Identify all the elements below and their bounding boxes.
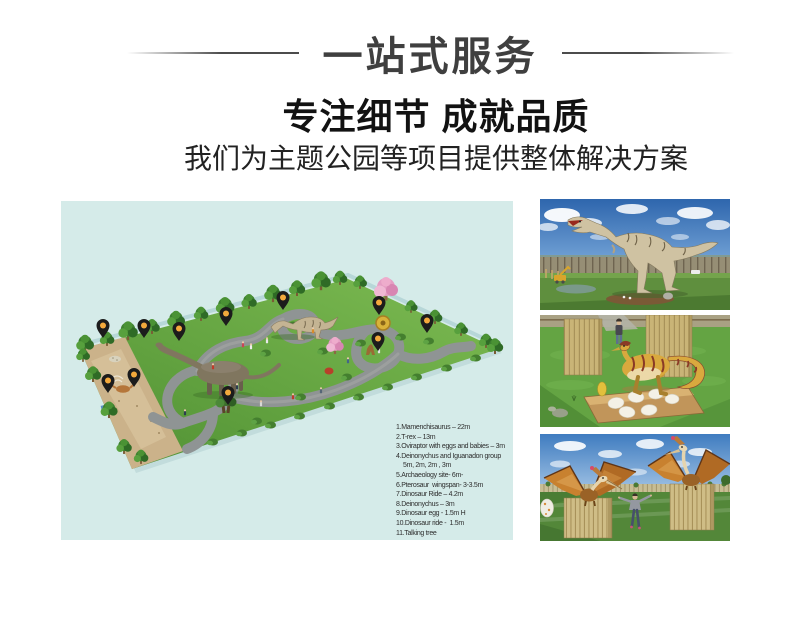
pond: [556, 285, 596, 294]
banner-divider-right: [562, 52, 734, 54]
promo-page: 一站式服务 专注细节 成就品质 我们为主题公园等项目提供整体解决方案: [0, 0, 800, 626]
legend-item: 11.Talking tree: [396, 529, 511, 539]
legend-item: 1.Mamenchisaurus – 22m: [396, 423, 511, 433]
legend-item: 3.Oviraptor with eggs and babies – 3m: [396, 442, 511, 452]
section-subtitle: 我们为主题公园等项目提供整体解决方案: [0, 137, 800, 177]
legend-item: 5.Archaeology site- 6m-: [396, 471, 511, 481]
photo-oviraptor-eggs: [540, 315, 730, 427]
red-bush: [325, 368, 334, 375]
legend-item: 9.Dinosaur egg - 1.5m H: [396, 509, 511, 519]
distant-car: [691, 270, 700, 274]
photo-trex-model: [540, 199, 730, 310]
legend-item: 8.Deinonychus – 3m: [396, 500, 511, 510]
park-map-illustration: 1.Mamenchisaurus – 22m 2.T-rex – 13m 3.O…: [61, 201, 513, 540]
photo-pterosaur-ride: [540, 434, 730, 541]
rock: [663, 293, 673, 300]
hatchling-egg: [598, 382, 607, 396]
legend-item: 2.T-rex – 13m: [396, 433, 511, 443]
banner-title: 一站式服务: [323, 24, 538, 82]
gold-nest: [376, 316, 390, 330]
pedestal-left: [564, 498, 612, 538]
wood-palisade-left: [564, 319, 602, 375]
egg-ornament: [541, 499, 554, 517]
map-legend: 1.Mamenchisaurus – 22m 2.T-rex – 13m 3.O…: [396, 423, 511, 538]
legend-item: 5m, 2m, 2m , 3m: [396, 461, 511, 471]
pedestal-right: [670, 484, 714, 530]
section-heading: 专注细节 成就品质: [0, 88, 800, 140]
legend-item: 7.Dinosaur Ride – 4.2m: [396, 490, 511, 500]
legend-item: 10.Dinosaur ride - 1.5m: [396, 519, 511, 529]
banner: 一站式服务: [0, 24, 800, 82]
legend-item: 4.Deinonychus and Iguanadon group: [396, 452, 511, 462]
banner-divider-left: [127, 52, 299, 54]
legend-item: 6.Pterosaur wingspan- 3-3.5m: [396, 481, 511, 491]
